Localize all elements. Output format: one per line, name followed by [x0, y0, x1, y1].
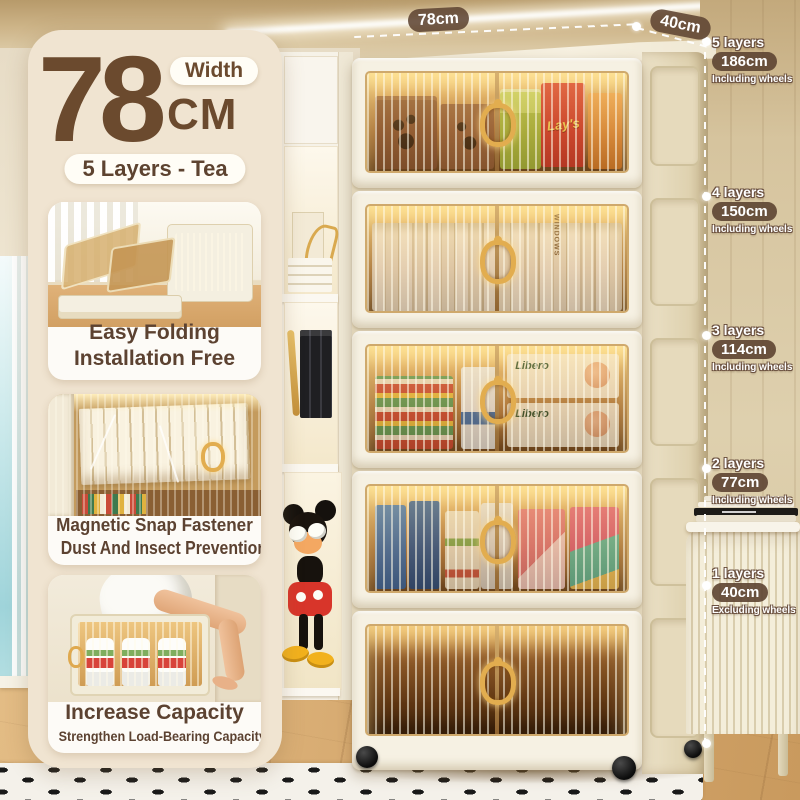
tier-door[interactable]: Lay's [365, 71, 629, 173]
dimension-dot [702, 739, 711, 748]
cabinet-tier-2 [352, 471, 642, 608]
height-marker-2-layers: 2 layers 77cm Including wheels [712, 455, 800, 506]
marker-layers-label: 5 layers [712, 34, 800, 50]
marker-height-pill: 40cm [712, 583, 768, 602]
dimension-dot [702, 581, 711, 590]
gold-handle-icon[interactable] [480, 380, 516, 424]
mickey-hand [289, 526, 307, 542]
storage-cabinet: Lay's WINDOWS [344, 40, 716, 784]
cabinet-front: Lay's WINDOWS [352, 58, 642, 770]
dimension-dot [702, 192, 711, 201]
marker-layers-label: 1 layers [712, 565, 800, 581]
caption-line1: Easy Folding [48, 320, 261, 346]
mickey-shorts [288, 582, 332, 616]
mickey-shoe [281, 645, 310, 664]
caption-line2: Strengthen Load-Bearing Capacity [59, 728, 251, 746]
tier-door[interactable]: Libero Libero [365, 344, 629, 453]
marker-note: Excluding wheels [712, 604, 796, 616]
width-dimension-pill: 78cm [407, 6, 469, 32]
shelf-board [282, 688, 340, 696]
feature-photo-capacity [48, 575, 261, 702]
dimension-dot [702, 464, 711, 473]
gold-handle-icon[interactable] [480, 240, 516, 284]
cabinet-tier-5: Lay's [352, 58, 642, 188]
feature-photo-magnetic [48, 394, 261, 516]
feature-card-magnetic: Magnetic Snap Fastener Dust And Insect P… [48, 394, 261, 565]
cabinet-tier-1 [352, 611, 642, 770]
photo-cabinet-window [78, 622, 202, 686]
marker-note: Including wheels [712, 361, 796, 373]
height-dimension-line [704, 38, 706, 750]
caster-wheel [612, 756, 636, 780]
shelf-board [282, 294, 338, 302]
white-book-stack [288, 258, 332, 292]
height-marker-4-layers: 4 layers 150cm Including wheels [712, 184, 800, 235]
marker-layers-label: 3 layers [712, 322, 800, 338]
cabinet-tier-3: Libero Libero [352, 331, 642, 468]
book [696, 515, 796, 522]
feature-caption: Increase Capacity Strengthen Load-Bearin… [48, 700, 261, 745]
width-value: 78 [38, 38, 160, 160]
info-panel: 78 Width CM 5 Layers - Tea Easy Folding … [28, 30, 282, 768]
marker-height-pill: 77cm [712, 473, 768, 492]
feature-card-capacity: Increase Capacity Strengthen Load-Bearin… [48, 575, 261, 753]
tier-door[interactable] [365, 624, 629, 736]
cabinet-tier-4: WINDOWS [352, 191, 642, 328]
shelf-cupboard [284, 56, 338, 144]
feature-photo-folding [48, 202, 261, 327]
photo-door-ribs [48, 394, 261, 516]
height-marker-5-layers: 5 layers 186cm Including wheels [712, 34, 800, 85]
gold-handle-icon[interactable] [480, 661, 516, 705]
marker-note: Including wheels [712, 223, 796, 235]
mickey-figurine [282, 498, 340, 688]
marker-layers-label: 2 layers [712, 455, 800, 471]
marker-height-pill: 114cm [712, 340, 776, 359]
width-unit: CM [167, 90, 237, 140]
tier-door[interactable] [365, 484, 629, 593]
feature-card-folding: Easy Folding Installation Free [48, 202, 261, 380]
caption-line2: Installation Free [48, 346, 261, 372]
gold-handle-icon[interactable] [480, 520, 516, 564]
gold-handle-icon [201, 442, 225, 472]
shelf-board [282, 464, 338, 472]
side-panel [650, 338, 700, 446]
mickey-leg [314, 614, 323, 650]
dimension-dot [632, 22, 641, 31]
height-marker-3-layers: 3 layers 114cm Including wheels [712, 322, 800, 373]
caption-line2: Dust And Insect Prevention [61, 537, 248, 560]
feature-caption: Magnetic Snap Fastener Dust And Insect P… [48, 514, 261, 559]
feature-caption: Easy Folding Installation Free [48, 320, 261, 373]
folded-flat-panel [58, 295, 182, 319]
mickey-shoe [306, 651, 334, 669]
mickey-button [296, 592, 306, 602]
door-ribs [78, 622, 202, 686]
tier-door[interactable]: WINDOWS [365, 204, 629, 313]
caption-line1: Magnetic Snap Fastener [53, 514, 255, 537]
side-cabinet-leg [778, 732, 788, 776]
width-label-pill: Width [170, 57, 258, 85]
side-panel [650, 66, 700, 166]
marker-height-pill: 186cm [712, 52, 777, 71]
photo-cabinet-unit [167, 224, 253, 302]
gold-handle-icon [68, 646, 84, 668]
marker-note: Including wheels [712, 73, 796, 85]
black-books [300, 330, 332, 418]
caption-line1: Increase Capacity [48, 700, 261, 726]
marker-height-pill: 150cm [712, 202, 777, 221]
mickey-hand [308, 523, 326, 539]
photo-cabinet-unit [70, 614, 210, 696]
gold-handle-icon[interactable] [480, 103, 516, 147]
caster-wheel [356, 746, 378, 768]
side-panel [650, 198, 700, 306]
height-marker-1-layer: 1 layers 40cm Excluding wheels [712, 565, 800, 616]
variant-pill: 5 Layers - Tea [64, 154, 245, 184]
marker-layers-label: 4 layers [712, 184, 800, 200]
product-infographic: Lay's WINDOWS [0, 0, 800, 800]
mickey-button [313, 590, 323, 600]
photo-cabinet-window [175, 233, 245, 291]
dimension-dot [702, 331, 711, 340]
marker-note: Including wheels [712, 494, 796, 506]
mickey-leg [299, 614, 308, 650]
